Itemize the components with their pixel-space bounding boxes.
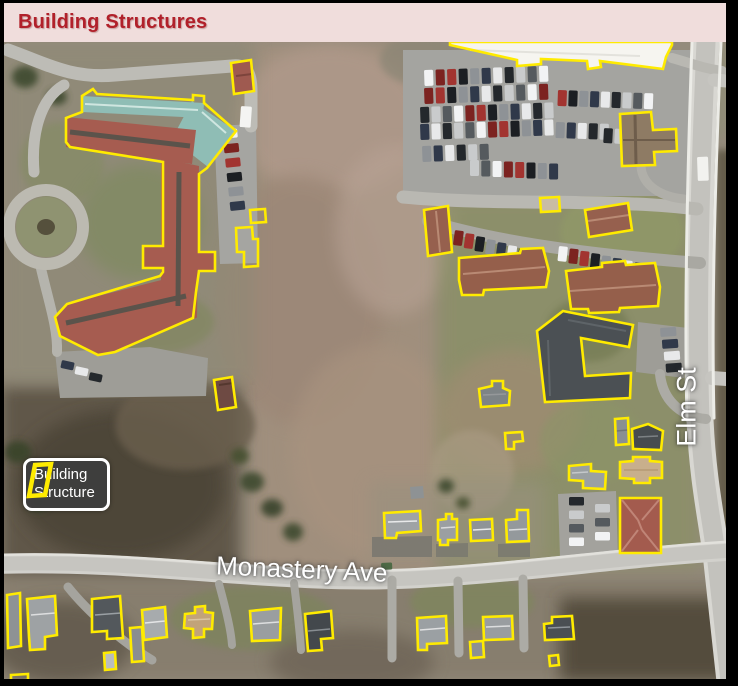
building-south-house-c: [92, 596, 123, 639]
building-south-house-e: [142, 607, 167, 640]
building-south-house-g: [250, 608, 281, 641]
page-title: Building Structures: [18, 11, 207, 34]
building-dark-house-elm: [632, 424, 663, 450]
building-north-house-3: [470, 519, 493, 541]
building-small-dark-hut: [214, 377, 236, 410]
slide-frame: Building Structures Monastery Ave Elm St…: [0, 0, 738, 686]
building-structure-symbol-icon: [26, 461, 107, 508]
map-svg: [4, 42, 726, 679]
building-south-house-j: [483, 616, 513, 640]
building-tan-hut: [540, 197, 560, 212]
building-south-shed-d: [130, 627, 144, 662]
building-north-house-2: [438, 514, 457, 545]
building-big-red-building: [620, 498, 661, 553]
building-small-red-hut: [231, 60, 254, 94]
building-red-apartment-2: [566, 261, 660, 313]
legend: Building Structure: [23, 458, 110, 511]
legend-outline-swatch: [29, 464, 51, 496]
building-south-house-a: [7, 593, 21, 648]
building-red-building-b: [424, 206, 452, 256]
map-canvas[interactable]: Monastery Ave Elm St Building Structure: [4, 42, 726, 679]
building-south-shed-c: [104, 652, 116, 670]
building-gray-shed-2: [615, 418, 629, 445]
building-south-shed-j: [470, 641, 484, 658]
building-tan-office: [620, 457, 662, 483]
title-bar: Building Structures: [4, 3, 726, 42]
building-red-building-a: [585, 203, 632, 237]
